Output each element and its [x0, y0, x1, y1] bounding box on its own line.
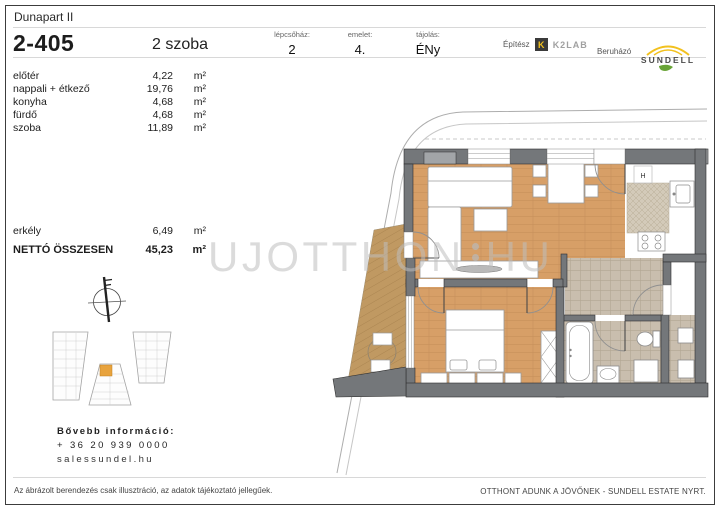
- floor-plan-drawing: H: [0, 0, 720, 510]
- dining-chair: [533, 165, 546, 177]
- front-door-opening: [663, 285, 671, 315]
- tub-tap: [569, 349, 571, 351]
- balcony-stool: [373, 333, 392, 345]
- toilet-tank: [653, 331, 660, 347]
- site-building-right: [133, 332, 171, 383]
- dining-chair: [533, 185, 546, 197]
- tub-tap: [569, 355, 571, 357]
- compass-icon: [88, 277, 126, 322]
- balcony-deck: [348, 224, 406, 381]
- coffee-table: [474, 209, 507, 231]
- dining-table: [548, 160, 584, 203]
- neighbor-fixture: [678, 360, 694, 378]
- bench: [505, 373, 521, 384]
- sofa: [428, 167, 512, 207]
- entry-hall-floor: [565, 258, 663, 315]
- kitchen-counter: [627, 183, 669, 233]
- washing-machine: [634, 360, 658, 382]
- pillow: [450, 360, 467, 370]
- site-plan: [53, 332, 171, 405]
- faucet: [673, 193, 676, 196]
- fridge-label: H: [640, 173, 645, 180]
- bench: [421, 373, 447, 384]
- site-building-left: [53, 332, 88, 400]
- toilet-bowl: [637, 332, 653, 346]
- stove: [638, 232, 665, 251]
- bedroom-window: [406, 296, 414, 368]
- site-unit-highlight: [100, 365, 112, 376]
- bench: [477, 373, 503, 384]
- tv: [456, 266, 502, 273]
- bench: [449, 373, 475, 384]
- neighbor-fixture: [678, 328, 693, 343]
- pillow: [479, 360, 496, 370]
- dining-chair: [585, 185, 598, 197]
